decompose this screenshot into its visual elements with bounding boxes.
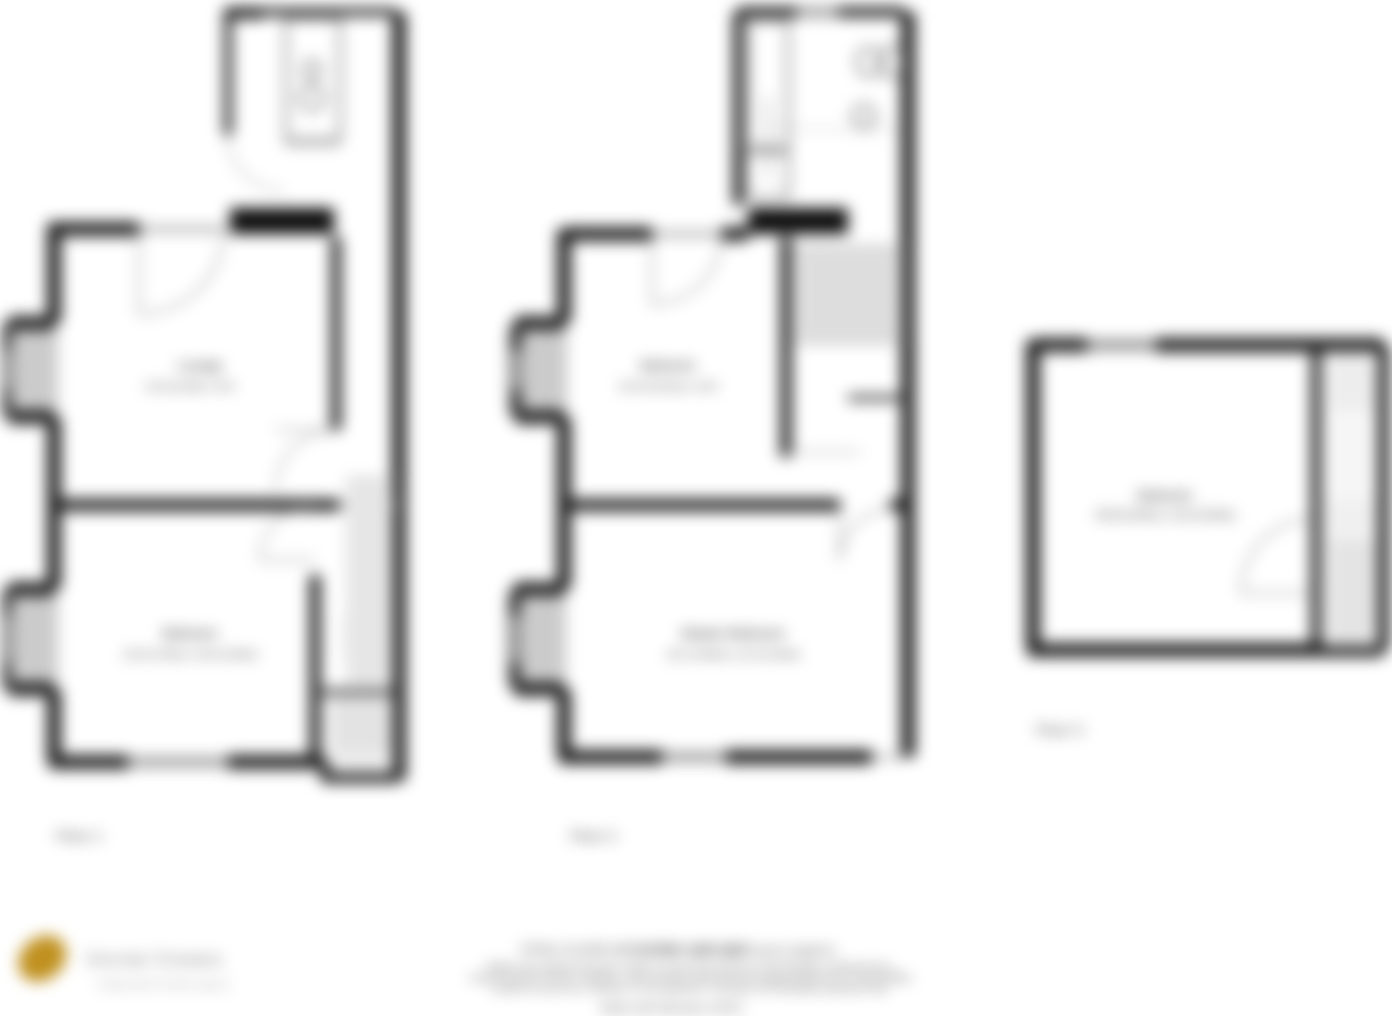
svg-text:Bedroom: Bedroom [1138,488,1193,503]
svg-text:Floor 2: Floor 2 [570,828,617,845]
svg-text:is taken for any error, omissi: is taken for any error, omission or mis-… [491,984,889,995]
svg-text:Made with Metropix ©2021: Made with Metropix ©2021 [601,1001,744,1015]
svg-text:15'1 (4.60m) x 11'4 (3.45m): 15'1 (4.60m) x 11'4 (3.45m) [666,649,800,661]
svg-text:measurements of doors, windows: measurements of doors, windows, rooms an… [469,973,911,984]
svg-text:11'10 (3.61m) x 10'4: 11'10 (3.61m) x 10'4 [619,381,718,393]
svg-text:Floor 1: Floor 1 [56,828,103,845]
svg-text:Bedroom: Bedroom [641,358,696,373]
svg-text:AREA : 1006 sq.ft.: AREA : 1006 sq.ft. [639,942,751,957]
svg-text:12'5 (3.78m) x 10'0 (3.05m): 12'5 (3.78m) x 10'0 (3.05m) [123,649,257,661]
svg-text:Sinclair Estates: Sinclair Estates [85,949,223,971]
svg-text:11'10 (3.60) x 10'2: 11'10 (3.60) x 10'2 [145,381,235,393]
svg-text:Floor 3: Floor 3 [1036,722,1083,739]
svg-text:Independent Estate Agents: Independent Estate Agents [97,979,230,991]
svg-text:20'8 (6.30m) x 11'6 (3.50m): 20'8 (6.30m) x 11'6 (3.50m) [1095,510,1235,522]
svg-text:Whilst every attempt has been: Whilst every attempt has been made to en… [487,962,894,973]
svg-text:Master Bedroom: Master Bedroom [681,625,784,641]
svg-text:Lounge: Lounge [177,358,222,373]
svg-text:Bedroom: Bedroom [163,626,218,641]
